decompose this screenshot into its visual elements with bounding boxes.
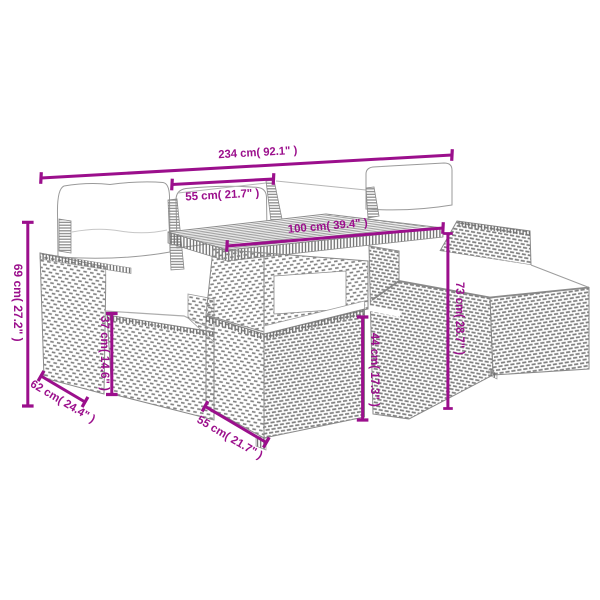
- svg-text:44 cm( 17.3" ): 44 cm( 17.3" ): [368, 333, 380, 407]
- svg-text:37 cm( 14.6" ): 37 cm( 14.6" ): [98, 316, 110, 391]
- svg-text:73 cm( 28.7" ): 73 cm( 28.7" ): [453, 282, 465, 355]
- svg-text:69 cm( 27.2" ): 69 cm( 27.2" ): [11, 264, 23, 342]
